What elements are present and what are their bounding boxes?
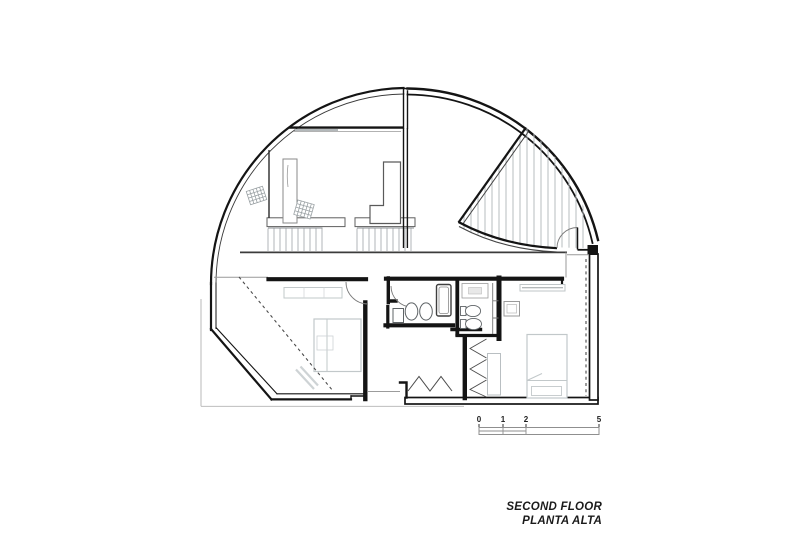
bottom-step	[400, 383, 407, 398]
terrace-edge-straight-inner	[463, 132, 529, 225]
bidet	[466, 318, 482, 329]
scale-label-2: 2	[524, 415, 529, 424]
scale-label-0: 0	[477, 415, 482, 424]
bathroom	[393, 285, 451, 323]
bottom-wall	[405, 398, 598, 405]
sink	[420, 303, 433, 320]
doors	[346, 282, 412, 307]
vanity	[393, 309, 404, 323]
wc-closet	[461, 283, 499, 334]
bottom-left-wall-cap	[351, 396, 364, 400]
shower-tray	[439, 287, 449, 314]
wall-junction-block	[588, 245, 599, 255]
chamfer-wall-inner	[216, 328, 277, 394]
bedroom-left	[239, 277, 361, 391]
terrace-door-swing	[557, 228, 578, 249]
closet-shelf	[284, 288, 342, 299]
floor-plan-drawing: 0 1 2 5	[0, 0, 800, 560]
scale-ticks	[479, 424, 599, 428]
stair-zigzag	[408, 377, 452, 392]
closet-label-text-mark	[469, 288, 482, 295]
scale-label-5: 5	[597, 415, 602, 424]
scale-label-1: 1	[501, 415, 506, 424]
right-wall	[590, 254, 599, 400]
stair-rail-left	[267, 218, 345, 227]
dome-arc-left-inner	[216, 94, 404, 284]
terrace-edge-curved-outer	[459, 222, 558, 248]
mezzanine-stairs	[214, 218, 589, 278]
curved-terrace	[459, 112, 590, 255]
stair-chevrons	[470, 339, 487, 397]
wicker-chair	[246, 186, 266, 205]
drawing-title-en: SECOND FLOOR	[506, 501, 602, 515]
stair-flight-left	[268, 228, 323, 251]
drawing-title-es: PLANTA ALTA	[506, 515, 602, 529]
studio-room	[246, 128, 407, 248]
bed	[527, 335, 567, 399]
nightstand	[504, 302, 520, 317]
dome-arc-left-outer	[211, 88, 404, 284]
dresser	[488, 354, 501, 396]
sink	[405, 303, 418, 320]
architectural-sheet: 0 1 2 5 SECOND FLOOR PLANTA ALTA	[0, 0, 800, 560]
scale-bar: 0 1 2 5	[477, 415, 602, 435]
title-block: SECOND FLOOR PLANTA ALTA	[506, 501, 602, 528]
chamfer-wall-outer	[211, 329, 272, 400]
toilet	[465, 305, 480, 316]
stair-flight-right	[357, 228, 414, 251]
bed	[314, 319, 361, 372]
l-shaped-counter	[370, 162, 401, 224]
hall-stairs	[368, 339, 487, 397]
